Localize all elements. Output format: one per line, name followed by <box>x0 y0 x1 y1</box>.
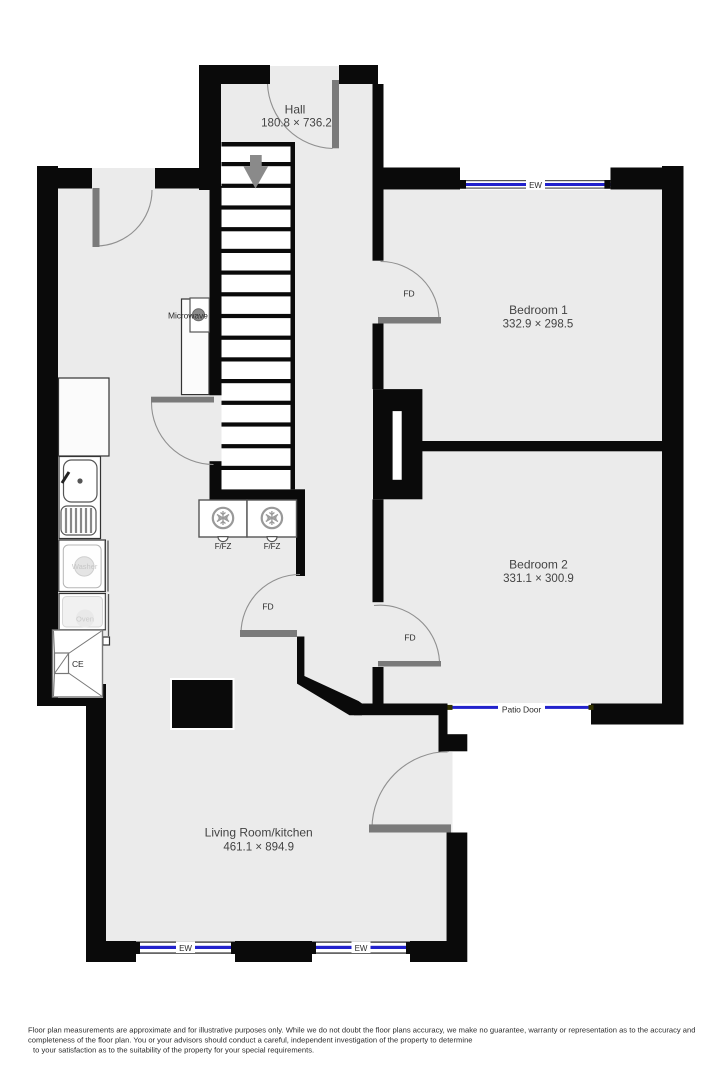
svg-text:Patio Door: Patio Door <box>502 705 541 715</box>
svg-text:Living Room/kitchen: Living Room/kitchen <box>205 826 313 840</box>
svg-text:Bedroom 1: Bedroom 1 <box>509 303 568 317</box>
svg-text:Washer: Washer <box>72 562 98 571</box>
svg-text:EW: EW <box>179 944 192 953</box>
svg-text:F/FZ: F/FZ <box>215 542 232 551</box>
svg-text:to your satisfaction as to the: to your satisfaction as to the suitabili… <box>33 1046 314 1055</box>
svg-text:EW: EW <box>529 181 542 190</box>
svg-text:180.8 × 736.2: 180.8 × 736.2 <box>261 118 332 130</box>
svg-text:FD: FD <box>404 633 415 643</box>
svg-text:EW: EW <box>355 944 368 953</box>
svg-text:FD: FD <box>403 289 414 299</box>
svg-text:FD: FD <box>262 602 273 612</box>
svg-text:F/FZ: F/FZ <box>264 542 281 551</box>
svg-text:Microwave: Microwave <box>168 311 208 321</box>
svg-text:Hall: Hall <box>285 103 306 117</box>
svg-text:Bedroom 2: Bedroom 2 <box>509 558 568 572</box>
svg-text:Floor plan measurements are ap: Floor plan measurements are approximate … <box>28 1026 695 1035</box>
svg-text:461.1 × 894.9: 461.1 × 894.9 <box>223 842 294 854</box>
svg-text:CE: CE <box>72 659 84 669</box>
svg-text:331.1 × 300.9: 331.1 × 300.9 <box>503 573 574 585</box>
svg-text:completeness of the floor plan: completeness of the floor plan. You or y… <box>28 1036 473 1045</box>
svg-text:332.9 × 298.5: 332.9 × 298.5 <box>503 319 574 331</box>
svg-text:Oven: Oven <box>76 615 94 624</box>
